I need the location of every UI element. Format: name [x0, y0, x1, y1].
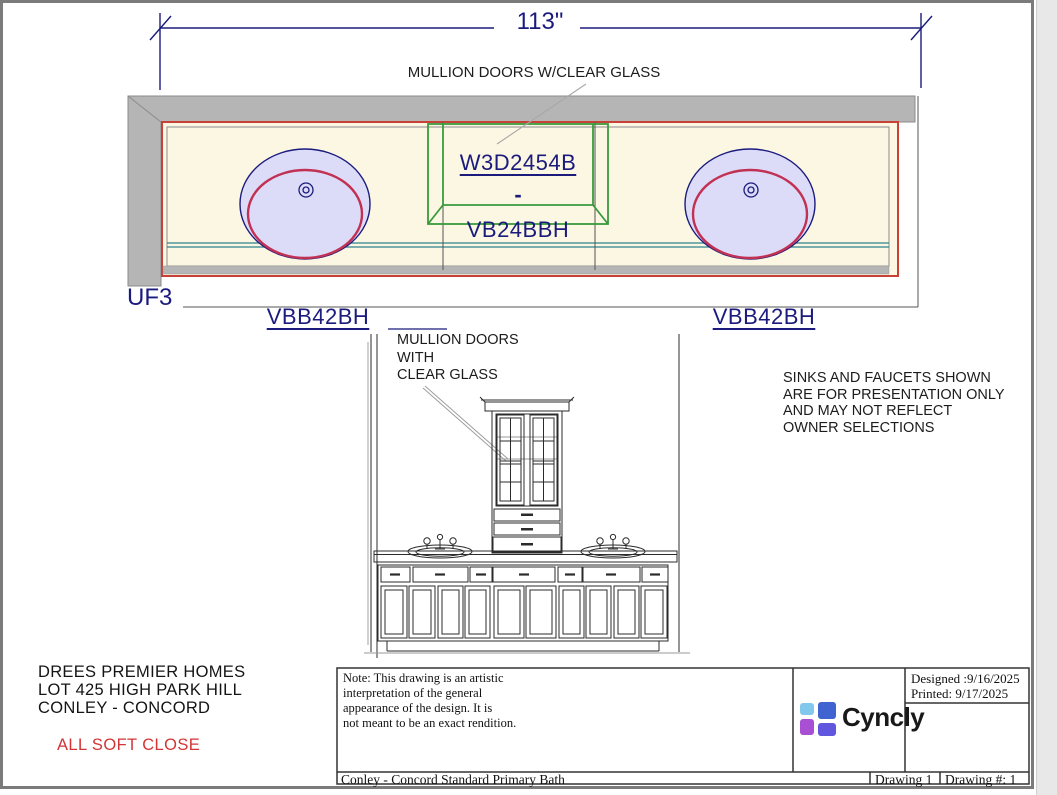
drawing-name: Drawing 1 [875, 772, 932, 788]
app-background-strip [1036, 0, 1057, 795]
soft-close-note: ALL SOFT CLOSE [57, 736, 200, 755]
cyncly-logo-icon [799, 700, 837, 738]
title-block-note: Note: This drawing is an artistic interp… [343, 671, 653, 731]
printed-date: Printed: 9/17/2025 [911, 686, 1008, 702]
drawing-number: Drawing #: 1 [945, 772, 1016, 788]
dimension-label: 113" [480, 8, 600, 36]
project-line-1: DREES PREMIER HOMES [38, 663, 245, 682]
project-title: Conley - Concord Standard Primary Bath [341, 772, 565, 788]
plan-mullion-note: MULLION DOORS W/CLEAR GLASS [388, 64, 680, 81]
vanity-left-code: VBB42BH [246, 304, 390, 330]
project-line-2: LOT 425 HIGH PARK HILL [38, 681, 242, 700]
vanity-right-code: VBB42BH [692, 304, 836, 330]
code-separator: - [430, 182, 606, 208]
cyncly-wordmark: Cyncly [842, 702, 924, 733]
filler-code: UF3 [127, 284, 172, 312]
presentation-note: SINKS AND FAUCETS SHOWN ARE FOR PRESENTA… [783, 370, 1005, 436]
base-cabinet-code: VB24BBH [430, 217, 606, 243]
wall-cabinet-code: W3D2454B [430, 150, 606, 176]
project-line-3: CONLEY - CONCORD [38, 699, 210, 718]
designed-date: Designed :9/16/2025 [911, 671, 1020, 687]
elevation-mullion-note: MULLION DOORS WITH CLEAR GLASS [397, 332, 519, 385]
